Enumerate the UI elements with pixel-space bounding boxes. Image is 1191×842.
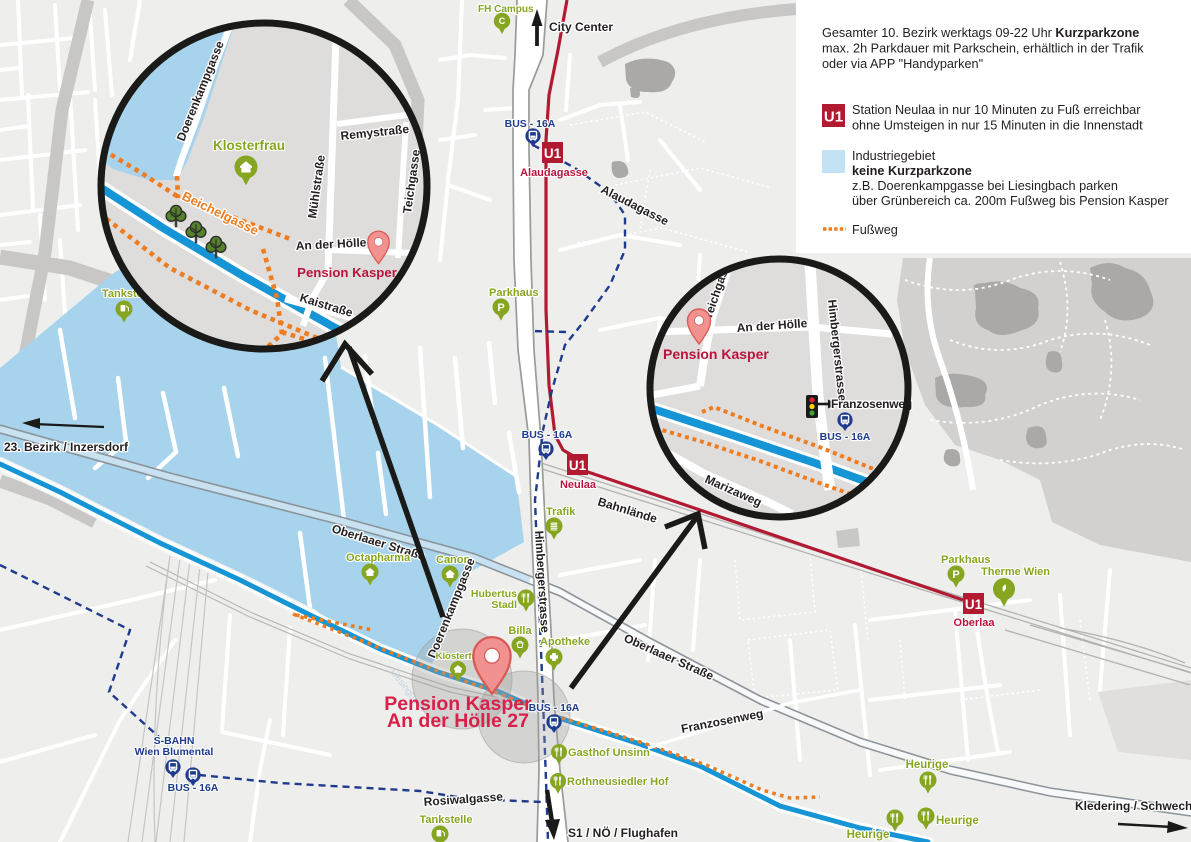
svg-text:Parkhaus: Parkhaus [489,287,539,299]
svg-text:U1: U1 [544,146,562,161]
svg-text:z.B. Doerenkampgasse bei Liesi: z.B. Doerenkampgasse bei Liesingbach par… [852,179,1118,193]
svg-text:An der Hölle 27: An der Hölle 27 [387,710,529,732]
svg-text:keine Kurzparkzone: keine Kurzparkzone [852,164,972,178]
svg-text:Heurige: Heurige [936,815,979,827]
svg-text:Alaudagasse: Alaudagasse [520,167,588,179]
svg-text:P: P [952,569,959,581]
svg-text:Franzosenweg: Franzosenweg [831,397,912,411]
svg-text:Fußweg: Fußweg [852,223,898,237]
svg-text:Heurige: Heurige [906,759,949,771]
svg-text:Stadl: Stadl [491,599,517,611]
svg-text:max. 2h Parkdauer mit Parksche: max. 2h Parkdauer mit Parkschein, erhält… [822,42,1144,56]
svg-text:FH Campus: FH Campus [478,4,534,15]
svg-text:Station Neulaa in nur 10 Minut: Station Neulaa in nur 10 Minuten zu Fuß … [852,103,1141,117]
svg-text:Pension Kasper: Pension Kasper [297,265,397,280]
svg-text:Klosterfrau: Klosterfrau [213,138,285,153]
svg-text:Neulaa: Neulaa [560,479,597,491]
svg-text:Pension Kasper: Pension Kasper [663,346,769,362]
svg-text:BUS - 16A: BUS - 16A [168,782,219,794]
svg-text:Parkhaus: Parkhaus [941,554,991,566]
svg-text:Therme Wien: Therme Wien [981,566,1050,578]
svg-text:ohne Umsteigen in nur 15 Minut: ohne Umsteigen in nur 15 Minuten in die … [852,119,1143,133]
svg-text:Heurige: Heurige [847,829,890,841]
svg-text:Wien Blumental: Wien Blumental [135,746,214,758]
svg-text:über Grünbereich ca. 200m Fußw: über Grünbereich ca. 200m Fußweg bis Pen… [852,194,1169,208]
svg-text:oder via APP "Handyparken": oder via APP "Handyparken" [822,57,983,71]
svg-text:BUS - 16A: BUS - 16A [522,429,573,441]
svg-text:23. Bezirk / Inzersdorf: 23. Bezirk / Inzersdorf [4,440,129,454]
svg-text:U1: U1 [569,458,587,473]
svg-text:Kledering / Schwechat: Kledering / Schwechat [1075,799,1191,813]
svg-text:BUS - 16A: BUS - 16A [820,431,871,443]
svg-text:Gasthof Unsinn: Gasthof Unsinn [568,747,650,759]
svg-text:Trafik: Trafik [546,506,576,518]
svg-text:Octapharma: Octapharma [346,552,411,564]
svg-text:Gesamter 10. Bezirk werktags 0: Gesamter 10. Bezirk werktags 09-22 Uhr K… [822,26,1139,40]
svg-text:Rothneusiedler Hof: Rothneusiedler Hof [567,776,669,788]
svg-text:P: P [497,302,504,314]
svg-text:Oberlaa: Oberlaa [954,617,996,629]
svg-text:BUS - 16A: BUS - 16A [505,118,556,130]
svg-text:U1: U1 [824,109,843,126]
svg-text:U1: U1 [965,597,983,612]
svg-text:Tankstelle: Tankstelle [420,814,473,826]
svg-text:City Center: City Center [549,20,613,34]
svg-text:Industriegebiet: Industriegebiet [852,149,936,163]
svg-text:Billa: Billa [508,625,532,637]
svg-text:Apotheke: Apotheke [540,636,590,648]
svg-text:S1 / NÖ / Flughafen: S1 / NÖ / Flughafen [568,825,678,840]
svg-text:C: C [499,16,506,26]
svg-text:BUS - 16A: BUS - 16A [529,702,580,714]
